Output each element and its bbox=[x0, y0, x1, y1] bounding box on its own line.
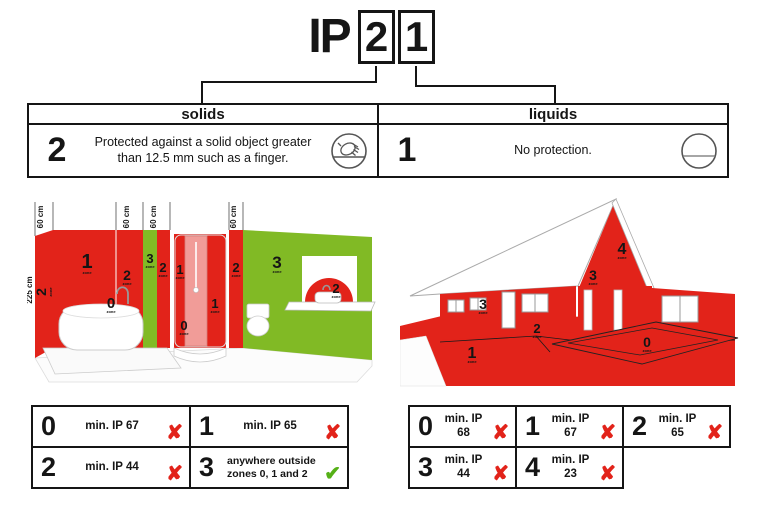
ip-req-cell: 0 min. IP 67 ✘ bbox=[31, 405, 191, 448]
zone-word: zone bbox=[617, 255, 627, 260]
ip-requirement: min. IP 65 bbox=[219, 420, 321, 433]
connector-liquids-line bbox=[415, 66, 417, 87]
zone-number: 2 bbox=[632, 413, 652, 440]
bathroom-ip-requirements-table: 0 min. IP 67 ✘ 1 min. IP 65 ✘ 2 min. IP … bbox=[31, 405, 349, 489]
verdict-mark-icon: ✘ bbox=[703, 423, 723, 443]
verdict-mark-icon: ✘ bbox=[489, 464, 509, 484]
ip-req-cell: 0 min. IP 68 ✘ bbox=[408, 405, 517, 448]
zone-word: zone bbox=[106, 309, 116, 314]
measure-label: 60 cm bbox=[122, 206, 131, 229]
zone-number: 0 bbox=[418, 413, 438, 440]
verdict-mark-icon: ✘ bbox=[596, 464, 616, 484]
connector-solids-line bbox=[375, 66, 377, 82]
verdict-mark-icon: ✘ bbox=[489, 423, 509, 443]
zone-word: zone bbox=[179, 331, 189, 336]
ip-req-cell: 4 min. IP 23 ✘ bbox=[515, 446, 624, 489]
liquids-description: No protection. bbox=[435, 143, 671, 159]
ip-req-cell: 1 min. IP 67 ✘ bbox=[515, 405, 624, 448]
verdict-mark-icon: ✔ bbox=[321, 464, 341, 484]
svg-text:zone: zone bbox=[48, 287, 53, 297]
door bbox=[502, 292, 515, 328]
zone-word: zone bbox=[122, 281, 132, 286]
solids-header: solids bbox=[27, 103, 379, 125]
zone-word: zone bbox=[82, 270, 92, 275]
liquids-digit-box: 1 bbox=[398, 10, 435, 64]
green-strip-zone3 bbox=[143, 230, 157, 348]
zone-word: zone bbox=[175, 275, 185, 280]
ip-requirement: min. IP 44 bbox=[438, 454, 489, 480]
ip-requirement: min. IP 67 bbox=[545, 413, 596, 439]
ip-requirement: min. IP 23 bbox=[545, 454, 596, 480]
ip-requirement: min. IP 65 bbox=[652, 413, 703, 439]
no-protection-icon bbox=[679, 131, 719, 171]
title-ip-prefix: IP bbox=[303, 10, 355, 64]
zone-word: zone bbox=[272, 269, 282, 274]
zone-number: 4 bbox=[525, 454, 545, 481]
house-zones-illustration: 1 zone 2 zone 3 zone 3 zone 4 zone 0 zon… bbox=[400, 190, 740, 390]
zone-word: zone bbox=[478, 310, 488, 315]
measure-label: 60 cm bbox=[36, 206, 45, 229]
ip-requirement: min. IP 44 bbox=[61, 461, 163, 474]
svg-text:2: 2 bbox=[33, 288, 49, 296]
solids-description: Protected against a solid object greater… bbox=[85, 135, 321, 166]
zone-number: 3 bbox=[418, 454, 438, 481]
ip-req-cell: 2 min. IP 44 ✘ bbox=[31, 446, 191, 489]
solids-rating-digit: 2 bbox=[29, 131, 85, 170]
ip-req-cell: 2 min. IP 65 ✘ bbox=[622, 405, 731, 448]
red-strip-zone2 bbox=[157, 230, 170, 348]
zone-word: zone bbox=[532, 334, 542, 339]
bathroom-zones-illustration: 60 cm 60 cm 60 cm 60 cm 60 cm 60 cm 225 … bbox=[27, 190, 377, 390]
verdict-mark-icon: ✘ bbox=[321, 423, 341, 443]
zone-number: 1 bbox=[199, 413, 219, 440]
zone-number: 1 bbox=[525, 413, 545, 440]
outdoor-ip-requirements-table: 0 min. IP 68 ✘ 1 min. IP 67 ✘ 2 min. IP … bbox=[408, 405, 731, 489]
liquids-rating-table: liquids 1 No protection. bbox=[377, 103, 729, 178]
ip-rating-infographic: IP 2 1 solids 2 Protected against a soli… bbox=[0, 0, 758, 505]
connector-solids-line bbox=[201, 81, 377, 83]
zone-word: zone bbox=[158, 273, 168, 278]
ip-req-cell: 1 min. IP 65 ✘ bbox=[189, 405, 349, 448]
zone-word: zone bbox=[588, 281, 598, 286]
zone-word: zone bbox=[210, 309, 220, 314]
measure-label: 60 cm bbox=[229, 206, 238, 229]
porch-post bbox=[584, 290, 592, 330]
verdict-mark-icon: ✘ bbox=[163, 464, 183, 484]
right-strip-zone2 bbox=[229, 230, 243, 348]
page-title: IP 2 1 bbox=[303, 10, 435, 64]
zone-word: zone bbox=[467, 359, 477, 364]
zone-word: zone bbox=[642, 348, 652, 353]
zone-label: 2 zone bbox=[33, 287, 53, 297]
connector-liquids-line bbox=[554, 85, 556, 104]
liquids-header: liquids bbox=[377, 103, 729, 125]
verdict-mark-icon: ✘ bbox=[596, 423, 616, 443]
ip-requirement: anywhere outside zones 0, 1 and 2 bbox=[219, 455, 321, 479]
porch-post bbox=[614, 290, 622, 330]
connector-solids-line bbox=[201, 81, 203, 104]
verdict-mark-icon: ✘ bbox=[163, 423, 183, 443]
ip-requirement: min. IP 68 bbox=[438, 413, 489, 439]
zone-word: zone bbox=[231, 273, 241, 278]
zone-number: 2 bbox=[41, 454, 61, 481]
ip-requirement: min. IP 67 bbox=[61, 420, 163, 433]
zone-word: zone bbox=[331, 294, 341, 299]
liquids-rating-digit: 1 bbox=[379, 131, 435, 170]
ip-req-cell: 3 anywhere outside zones 0, 1 and 2 ✔ bbox=[189, 446, 349, 489]
solids-digit-box: 2 bbox=[358, 10, 395, 64]
zone-word: zone bbox=[145, 264, 155, 269]
solids-rating-table: solids 2 Protected against a solid objec… bbox=[27, 103, 379, 178]
measure-label: 60 cm bbox=[149, 206, 158, 229]
connector-liquids-line bbox=[415, 85, 556, 87]
zone-number: 0 bbox=[41, 413, 61, 440]
toilet bbox=[247, 304, 269, 336]
ip-req-cell: 3 min. IP 44 ✘ bbox=[408, 446, 517, 489]
zone-number: 3 bbox=[199, 454, 219, 481]
hand-touch-icon bbox=[329, 131, 369, 171]
